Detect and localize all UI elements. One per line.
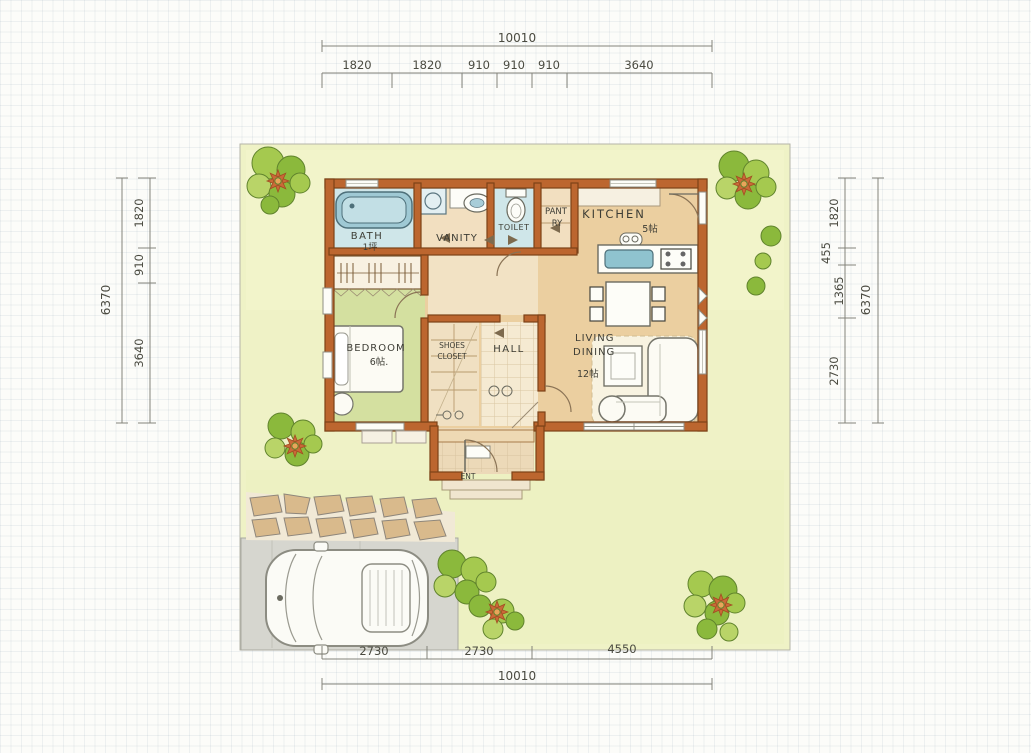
label-shoes-1: SHOES: [439, 341, 465, 350]
dim-right-seg-0: 1820: [827, 198, 841, 227]
dimension-left: 6370 1820 910 3640: [99, 178, 156, 423]
label-living-2: DINING: [573, 347, 615, 358]
toilet-fixture: [506, 189, 526, 222]
dim-bottom-seg-1: 2730: [464, 644, 493, 658]
label-pantry-2: RY: [552, 219, 563, 229]
stone-path: [246, 492, 455, 542]
label-living-1: LIVING: [575, 333, 615, 344]
dim-top-seg-5: 3640: [624, 58, 653, 72]
label-pantry-1: PANT: [545, 207, 568, 217]
label-toilet: TOILET: [498, 223, 530, 232]
dim-left-seg-1: 910: [132, 254, 146, 276]
dim-bottom-seg-0: 2730: [359, 644, 388, 658]
entrance-porch: [442, 480, 530, 499]
car: [266, 542, 428, 654]
label-kitchen: KITCHEN: [582, 207, 646, 221]
dim-top-seg-0: 1820: [342, 58, 371, 72]
dim-left-seg-0: 1820: [132, 198, 146, 227]
dim-top-seg-4: 910: [538, 58, 560, 72]
dimension-top: 10010 1820 1820 910 910 910 3640: [322, 31, 712, 88]
dim-right-total: 6370: [859, 285, 873, 316]
label-entrance: ENT: [461, 472, 476, 481]
floor-plan-drawing: BATH 1坪 VANITY TOILET PANT RY KITCHEN 5帖…: [0, 0, 1031, 753]
label-living-size: 12帖: [577, 368, 599, 380]
label-bedroom-size: 6帖.: [370, 356, 389, 368]
dim-left-total: 6370: [99, 285, 113, 316]
dim-right-seg-1: 455: [819, 242, 833, 264]
label-kitchen-size: 5帖: [642, 223, 658, 235]
label-vanity: VANITY: [436, 233, 478, 244]
label-shoes-2: CLOSET: [437, 352, 467, 361]
label-hall: HALL: [493, 344, 525, 355]
dim-top-seg-3: 910: [503, 58, 525, 72]
label-bath: BATH: [351, 231, 384, 242]
dim-top-seg-1: 1820: [412, 58, 441, 72]
dim-bottom-seg-2: 4550: [607, 642, 636, 656]
dim-left-seg-2: 3640: [132, 338, 146, 367]
floor-plan-canvas: BATH 1坪 VANITY TOILET PANT RY KITCHEN 5帖…: [0, 0, 1031, 753]
label-bath-size: 1坪: [363, 242, 378, 253]
label-bedroom: BEDROOM: [346, 343, 405, 354]
dim-top-total: 10010: [498, 31, 536, 45]
dim-top-seg-2: 910: [468, 58, 490, 72]
dim-bottom-total: 10010: [498, 669, 536, 683]
dimension-right: 1820 455 1365 2730 6370: [819, 178, 884, 423]
dim-right-seg-3: 2730: [827, 356, 841, 385]
dim-right-seg-2: 1365: [832, 276, 846, 305]
bath-fixtures: [336, 192, 412, 228]
